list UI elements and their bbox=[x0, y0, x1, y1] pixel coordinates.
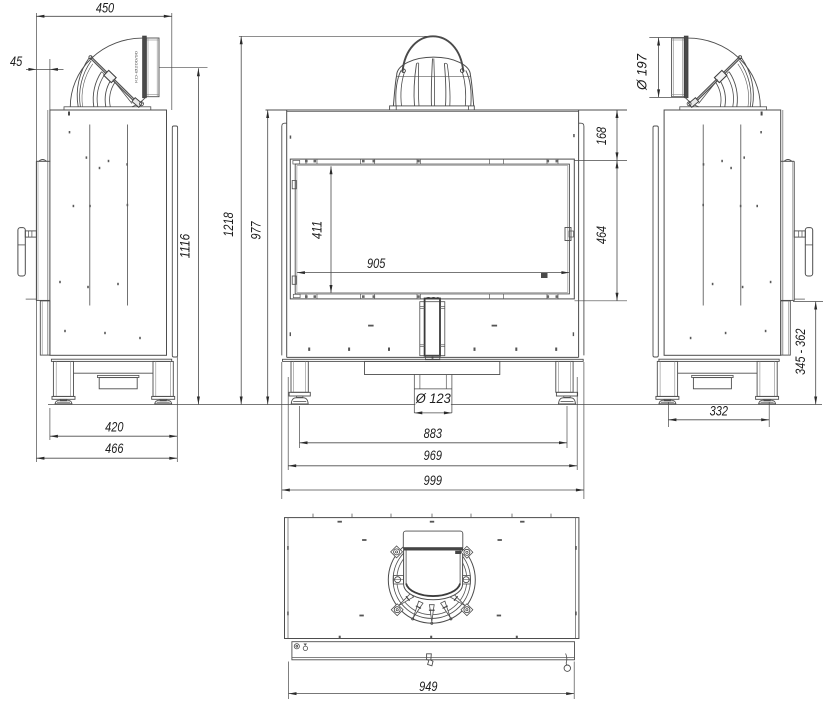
svg-text:949: 949 bbox=[419, 678, 437, 694]
svg-text:969: 969 bbox=[424, 447, 442, 463]
svg-text:1218: 1218 bbox=[220, 212, 236, 237]
svg-text:905: 905 bbox=[367, 255, 385, 271]
svg-text:168: 168 bbox=[593, 127, 609, 145]
svg-text:977: 977 bbox=[248, 220, 264, 239]
svg-text:45: 45 bbox=[10, 53, 22, 69]
svg-text:332: 332 bbox=[710, 402, 728, 418]
svg-text:999: 999 bbox=[424, 472, 442, 488]
svg-text:345 - 362: 345 - 362 bbox=[792, 328, 808, 374]
svg-text:Ø 197: Ø 197 bbox=[633, 53, 649, 91]
svg-text:450: 450 bbox=[96, 0, 114, 16]
svg-text:Ø 123: Ø 123 bbox=[415, 390, 451, 406]
svg-text:420: 420 bbox=[105, 419, 123, 435]
svg-text:883: 883 bbox=[424, 425, 442, 441]
svg-text:464: 464 bbox=[593, 226, 609, 244]
svg-text:466: 466 bbox=[105, 440, 123, 456]
svg-text:KD-Ø200/90: KD-Ø200/90 bbox=[134, 50, 139, 83]
svg-text:1116: 1116 bbox=[177, 234, 193, 259]
svg-text:411: 411 bbox=[309, 221, 325, 239]
